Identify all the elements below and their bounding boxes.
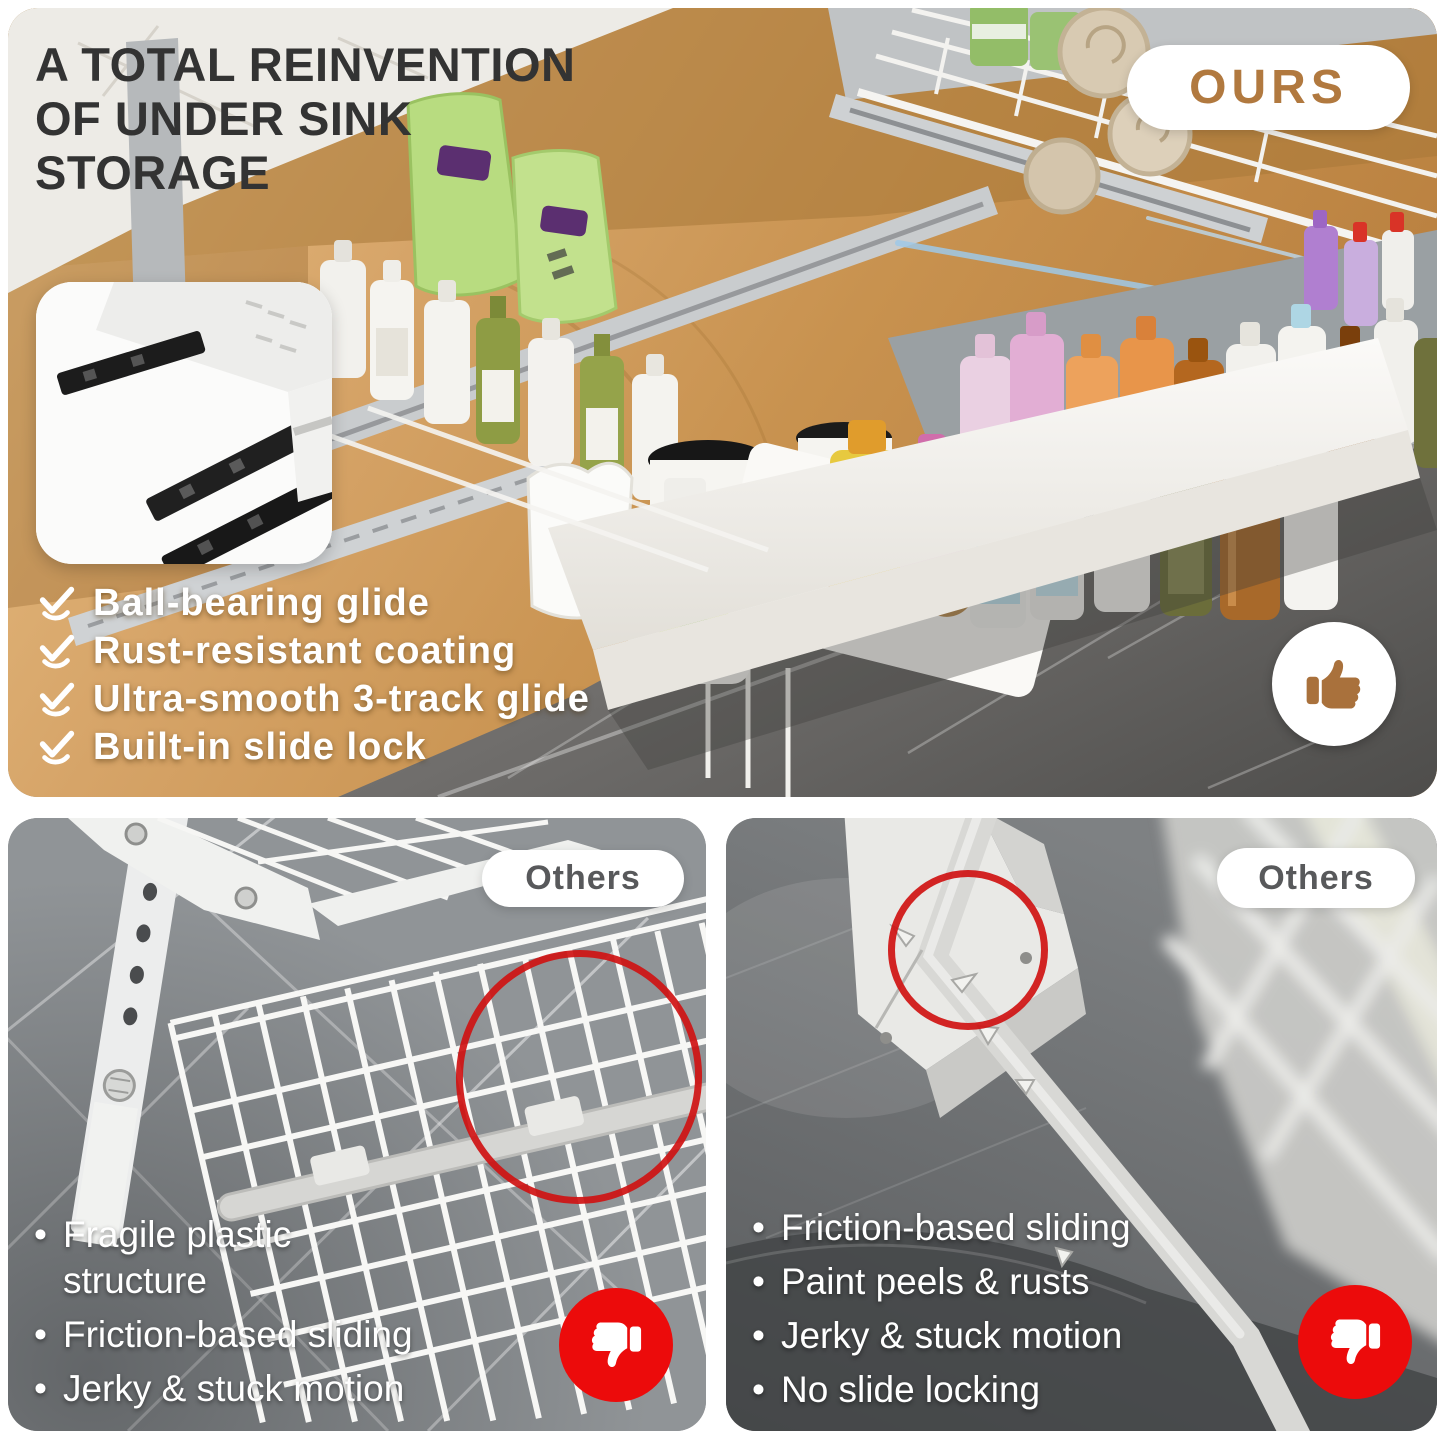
bullet-dot: • [752, 1367, 765, 1413]
bullet-dot: • [752, 1313, 765, 1359]
feature-label: Ball-bearing glide [93, 582, 430, 625]
check-icon [36, 727, 78, 767]
ours-badge: OURS [1127, 45, 1410, 130]
bullet-text: No slide locking [781, 1367, 1040, 1413]
feature-label: Rust-resistant coating [93, 630, 516, 673]
bullet-dot: • [34, 1312, 47, 1358]
bullet-item: •Fragile plastic structure [34, 1212, 442, 1304]
check-icon [36, 679, 78, 719]
thumbs-down-icon [583, 1312, 649, 1378]
feature-item: Built-in slide lock [36, 727, 590, 767]
slide-rails-illustration [36, 282, 332, 564]
rust-annotation-circle [888, 870, 1048, 1030]
feature-item: Rust-resistant coating [36, 631, 590, 671]
thumbs-down-icon [1322, 1309, 1388, 1375]
slide-rail-inset [36, 282, 332, 564]
others-badge-right: Others [1217, 848, 1415, 908]
bullet-item: •Jerky & stuck motion [34, 1366, 442, 1412]
feature-label: Ultra-smooth 3-track glide [93, 678, 590, 721]
bullet-dot: • [34, 1366, 47, 1412]
bullet-item: •Friction-based sliding [34, 1312, 442, 1358]
title-line: A TOTAL REINVENTION [35, 38, 575, 92]
product-comparison-graphic: A TOTAL REINVENTION OF UNDER SINK STORAG… [0, 0, 1445, 1439]
bullet-item: •Jerky & stuck motion [752, 1313, 1222, 1359]
bullet-dot: • [752, 1259, 765, 1305]
feature-label: Built-in slide lock [93, 726, 427, 769]
bullet-item: •Friction-based sliding [752, 1205, 1222, 1251]
others-badge-left: Others [482, 850, 684, 907]
others-badge-label: Others [525, 859, 641, 898]
thumbs-up-icon [1298, 648, 1370, 720]
hero-panel-ours: A TOTAL REINVENTION OF UNDER SINK STORAG… [8, 8, 1437, 797]
bullet-text: Fragile plastic structure [63, 1212, 442, 1304]
bullet-item: •No slide locking [752, 1367, 1222, 1413]
competitor-panel-right: Others •Friction-based sliding •Paint pe… [726, 818, 1437, 1431]
bullet-dot: • [752, 1205, 765, 1251]
competitor-left-bullets: •Fragile plastic structure •Friction-bas… [34, 1212, 442, 1420]
bullet-text: Jerky & stuck motion [781, 1313, 1122, 1359]
ours-badge-label: OURS [1189, 60, 1348, 115]
bullet-text: Friction-based sliding [63, 1312, 413, 1358]
thumbs-down-badge [559, 1288, 673, 1402]
others-badge-label: Others [1258, 859, 1374, 898]
bullet-text: Jerky & stuck motion [63, 1366, 404, 1412]
title-line: STORAGE [35, 146, 575, 200]
feature-item: Ball-bearing glide [36, 583, 590, 623]
bullet-text: Friction-based sliding [781, 1205, 1131, 1251]
thumbs-down-badge [1298, 1285, 1412, 1399]
check-icon [36, 631, 78, 671]
competitor-right-bullets: •Friction-based sliding •Paint peels & r… [752, 1205, 1222, 1421]
page-title: A TOTAL REINVENTION OF UNDER SINK STORAG… [35, 38, 575, 200]
bullet-dot: • [34, 1212, 47, 1304]
feature-list: Ball-bearing glide Rust-resistant coatin… [36, 583, 590, 775]
competitor-panel-left: Others •Fragile plastic structure •Frict… [8, 818, 706, 1431]
title-line: OF UNDER SINK [35, 92, 575, 146]
thumbs-up-badge [1272, 622, 1396, 746]
bullet-item: •Paint peels & rusts [752, 1259, 1222, 1305]
feature-item: Ultra-smooth 3-track glide [36, 679, 590, 719]
check-icon [36, 583, 78, 623]
bullet-text: Paint peels & rusts [781, 1259, 1089, 1305]
